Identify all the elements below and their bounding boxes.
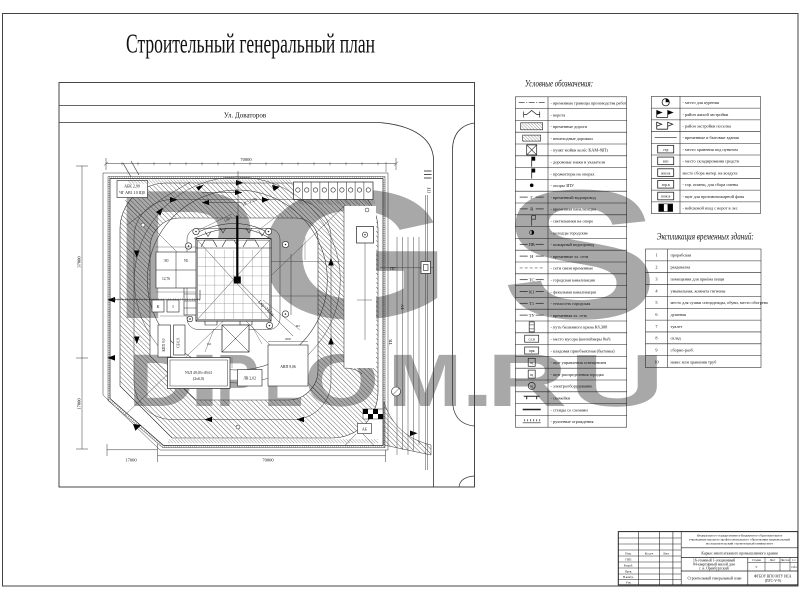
svg-text:К1: К1 bbox=[529, 289, 534, 294]
svg-text:АБ: АБ bbox=[362, 428, 367, 432]
svg-text:37000: 37000 bbox=[77, 256, 82, 268]
svg-text:- район жилой застройки: - район жилой застройки bbox=[683, 112, 729, 117]
svg-text:2: 2 bbox=[655, 265, 657, 270]
svg-text:3: 3 bbox=[655, 276, 657, 281]
svg-text:10: 10 bbox=[654, 359, 658, 364]
svg-text:Экспликация временных зданий:: Экспликация временных зданий: bbox=[657, 232, 754, 242]
svg-text:- городская канализация: - городская канализация bbox=[551, 278, 595, 283]
svg-text:9: 9 bbox=[655, 348, 657, 353]
svg-text:Строительный генеральный план: Строительный генеральный план bbox=[688, 577, 742, 581]
svg-text:- скамейки: - скамейки bbox=[551, 396, 571, 401]
svg-text:ТУ: ТУ bbox=[400, 303, 405, 310]
svg-text:R5: R5 bbox=[296, 324, 300, 328]
svg-text:- щит для противопожарной фазы: - щит для противопожарной фазы bbox=[683, 194, 745, 199]
svg-text:всп: всп bbox=[663, 160, 669, 164]
svg-text:ТВ: ТВ bbox=[388, 339, 393, 345]
svg-text:- гор. помещ. для сбора смены: - гор. помещ. для сбора смены bbox=[683, 182, 739, 187]
svg-text:600: 600 bbox=[285, 337, 291, 341]
svg-text:Листов: Листов bbox=[781, 558, 790, 562]
svg-text:ЭО: ЭО bbox=[163, 259, 168, 263]
svg-text:К: К bbox=[157, 304, 160, 309]
svg-text:- временный водопровод: - временный водопровод bbox=[551, 195, 597, 200]
svg-text:5: 5 bbox=[655, 300, 657, 305]
svg-text:- временная эл. сеть: - временная эл. сеть bbox=[551, 313, 588, 318]
svg-text:Лист: Лист bbox=[663, 552, 670, 556]
svg-text:помещения для приёма пищи: помещения для приёма пищи bbox=[671, 276, 725, 281]
svg-text:ТС: ТС bbox=[529, 278, 535, 283]
svg-text:Ул. Доваторов: Ул. Доваторов bbox=[224, 112, 267, 120]
svg-text:Разраб.: Разраб. bbox=[624, 564, 634, 568]
svg-text:табл: табл bbox=[791, 565, 797, 569]
svg-text:Каркас многоэтажного промышлен: Каркас многоэтажного промышленного здани… bbox=[701, 552, 777, 556]
svg-text:раздевалка: раздевалка bbox=[671, 265, 691, 270]
svg-text:Пров.: Пров. bbox=[625, 570, 633, 574]
svg-text:- временная канализация: - временная канализация bbox=[551, 207, 597, 212]
svg-text:ПВ: ПВ bbox=[529, 242, 535, 247]
svg-text:ЧГ АВ1.10 Щ0: ЧГ АВ1.10 Щ0 bbox=[119, 190, 145, 195]
svg-text:17000: 17000 bbox=[125, 458, 137, 463]
svg-text:- рулонные ограждения: - рулонные ограждения bbox=[551, 419, 594, 424]
svg-text:1: 1 bbox=[655, 253, 657, 258]
svg-text:жил.в: жил.в bbox=[660, 171, 670, 175]
svg-text:- временные эл. сети: - временные эл. сети bbox=[551, 254, 589, 259]
svg-text:прорабская: прорабская bbox=[671, 253, 692, 258]
svg-text:- кладовая приобъектная (бытов: - кладовая приобъектная (бытовка) bbox=[551, 348, 616, 353]
svg-text:- ворота: - ворота bbox=[551, 112, 566, 117]
svg-text:место сбора матер. на воздухе: место сбора матер. на воздухе bbox=[683, 170, 738, 175]
svg-text:В: В bbox=[530, 207, 533, 212]
svg-text:- дорожные знаки и указатели: - дорожные знаки и указатели bbox=[551, 160, 606, 165]
svg-text:гор.в: гор.в bbox=[662, 183, 670, 187]
svg-text:- район застройки поселка: - район застройки поселка bbox=[683, 124, 731, 129]
svg-text:Стадия: Стадия bbox=[752, 558, 761, 562]
svg-text:- стенды со схемами: - стенды со схемами bbox=[551, 407, 589, 412]
svg-text:Лист: Лист bbox=[769, 558, 776, 562]
svg-text:пож.в: пож.в bbox=[661, 195, 670, 199]
svg-text:17000: 17000 bbox=[77, 398, 82, 410]
svg-text:- место хранения под пунктом: - место хранения под пунктом bbox=[683, 147, 739, 152]
svg-text:Кол.уч: Кол.уч bbox=[645, 552, 654, 556]
svg-text:ПГ: ПГ bbox=[390, 266, 396, 271]
svg-text:- колодцы городские: - колодцы городские bbox=[551, 230, 589, 235]
svg-text:стр: стр bbox=[663, 148, 668, 152]
svg-text:г. и. Оренбургский: г. и. Оренбургский bbox=[699, 566, 728, 570]
svg-text:70000: 70000 bbox=[262, 458, 274, 463]
svg-text:щ: щ bbox=[530, 384, 533, 389]
svg-text:- место для курения: - место для курения bbox=[683, 100, 719, 105]
svg-text:- прожекторы на опорах: - прожекторы на опорах bbox=[551, 171, 596, 176]
svg-text:Изм.: Изм. bbox=[625, 552, 631, 556]
svg-text:ФГБОУ ВПО МГУ ИСА: ФГБОУ ВПО МГУ ИСА bbox=[754, 575, 792, 579]
svg-text:- светильники на опоре: - светильники на опоре bbox=[551, 219, 594, 224]
svg-text:навес млн хранения труб: навес млн хранения труб bbox=[671, 359, 718, 364]
svg-text:- пункт мойки колёс КАМ-8(П): - пункт мойки колёс КАМ-8(П) bbox=[551, 148, 609, 153]
svg-text:- войсковой вход с ворот в лес: - войсковой вход с ворот в лес bbox=[683, 206, 738, 211]
svg-text:склад: склад bbox=[671, 336, 682, 341]
svg-text:щ: щ bbox=[530, 373, 533, 377]
svg-text:ГИП: ГИП bbox=[625, 558, 632, 562]
svg-text:туалет: туалет bbox=[671, 324, 683, 329]
svg-text:- электрооборудование: - электрооборудование bbox=[551, 384, 593, 389]
svg-text:щ: щ bbox=[530, 361, 533, 365]
svg-text:душевая: душевая bbox=[671, 312, 686, 317]
svg-text:1: 1 bbox=[172, 304, 174, 309]
svg-text:- место мусора (контейнеры 8м³: - место мусора (контейнеры 8м³) bbox=[551, 337, 612, 342]
svg-text:УБ: УБ bbox=[184, 259, 189, 263]
svg-text:прк: прк bbox=[529, 349, 535, 353]
svg-text:Т1: Т1 bbox=[529, 301, 534, 306]
svg-text:- сети связи временные: - сети связи временные bbox=[551, 266, 594, 271]
svg-text:- место складирования средств: - место складирования средств bbox=[683, 159, 739, 164]
svg-text:сл.в: сл.в bbox=[529, 337, 536, 341]
svg-text:- фекальная канализация: - фекальная канализация bbox=[551, 289, 596, 294]
svg-text:- временные дороги: - временные дороги bbox=[551, 124, 588, 129]
svg-text:Строительный генеральный план: Строительный генеральный план bbox=[126, 28, 375, 59]
svg-text:- теплосеть городская: - теплосеть городская bbox=[551, 301, 591, 306]
svg-text:- временные границы производст: - временные границы производства работ bbox=[551, 101, 627, 106]
svg-text:M: M bbox=[388, 339, 462, 422]
svg-text:т-1: т-1 bbox=[792, 558, 796, 562]
svg-text:Утв.: Утв. bbox=[626, 581, 632, 585]
svg-text:- временные и бытовые здания: - временные и бытовые здания bbox=[683, 135, 739, 140]
svg-text:- пожарный водопровод: - пожарный водопровод bbox=[551, 242, 595, 247]
svg-text:- щит управления освещением: - щит управления освещением bbox=[551, 360, 607, 365]
svg-text:исследовательский строительный: исследовательский строительный университ… bbox=[706, 542, 774, 546]
svg-text:70000: 70000 bbox=[240, 157, 252, 162]
svg-text:8: 8 bbox=[655, 336, 657, 341]
svg-text:- опоры ЗПУ: - опоры ЗПУ bbox=[551, 183, 575, 188]
svg-text:ПТ: ПТ bbox=[427, 187, 432, 193]
svg-text:сборно-разб.: сборно-разб. bbox=[671, 348, 694, 353]
svg-text:(ПГС-V-9): (ПГС-V-9) bbox=[765, 579, 782, 583]
svg-text:Н.контр.: Н.контр. bbox=[623, 575, 634, 579]
svg-text:Условные обозначения:: Условные обозначения: bbox=[525, 79, 593, 89]
svg-text:ТУ: ТУ bbox=[529, 313, 536, 318]
svg-text:Г: Г bbox=[530, 195, 533, 200]
svg-text:- пешеходные дорожки: - пешеходные дорожки bbox=[551, 136, 594, 141]
svg-text:- щит распределения городка: - щит распределения городка bbox=[551, 372, 604, 377]
